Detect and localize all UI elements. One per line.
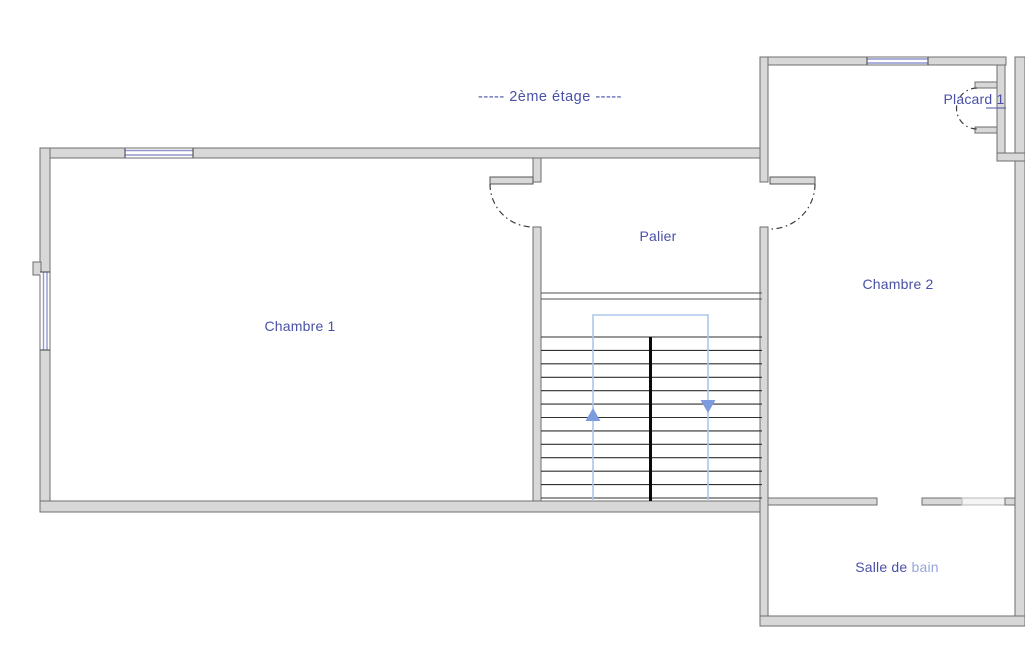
wall-main-bottom — [40, 501, 768, 512]
wall-placard-stub-top — [975, 82, 997, 88]
wall-right-section-bottom — [760, 616, 1025, 626]
door-chambre2 — [770, 177, 815, 229]
wall-chambre1-palier-upper — [533, 158, 541, 182]
wall-right-outer — [1015, 57, 1025, 626]
window-chambre1-top — [125, 148, 193, 158]
door-chambre1 — [490, 177, 533, 227]
room-label-palier: Palier — [640, 228, 677, 244]
wall-left-pilaster — [33, 262, 41, 275]
wall-chambre2-sdb-left — [768, 498, 877, 505]
wall-chambre2-sdb-right — [1005, 498, 1015, 505]
salle-de-bain-label-faded: bain — [912, 559, 939, 575]
floor-plan: ----- 2ème étage ----- Chambre 1 Palier … — [0, 0, 1025, 650]
room-label-salle-de-bain: Salle de bain — [855, 559, 939, 575]
window-chambre2-top — [867, 57, 928, 65]
wall-palier-chambre2-lower — [760, 227, 768, 616]
floor-title: ----- 2ème étage ----- — [478, 89, 622, 105]
wall-palier-chambre2-upper — [760, 57, 768, 182]
stairs-up-arrow-icon — [586, 408, 601, 421]
room-label-chambre2: Chambre 2 — [862, 276, 933, 292]
walls — [33, 57, 1025, 626]
wall-placard-inner — [997, 65, 1005, 161]
room-label-chambre1: Chambre 1 — [264, 318, 335, 334]
room-label-placard: Placard 1 — [944, 91, 1005, 107]
salle-de-bain-label-main: Salle de — [855, 559, 907, 575]
wall-placard-jog — [997, 153, 1025, 161]
staircase — [541, 293, 762, 501]
sliding-door-panel — [962, 498, 1005, 505]
wall-chambre1-palier-lower — [533, 227, 541, 501]
stairs-down-arrow-icon — [701, 400, 716, 413]
window-chambre1-left — [40, 272, 50, 350]
wall-chambre2-sdb-mid — [922, 498, 962, 505]
wall-placard-stub-bottom — [975, 127, 997, 133]
